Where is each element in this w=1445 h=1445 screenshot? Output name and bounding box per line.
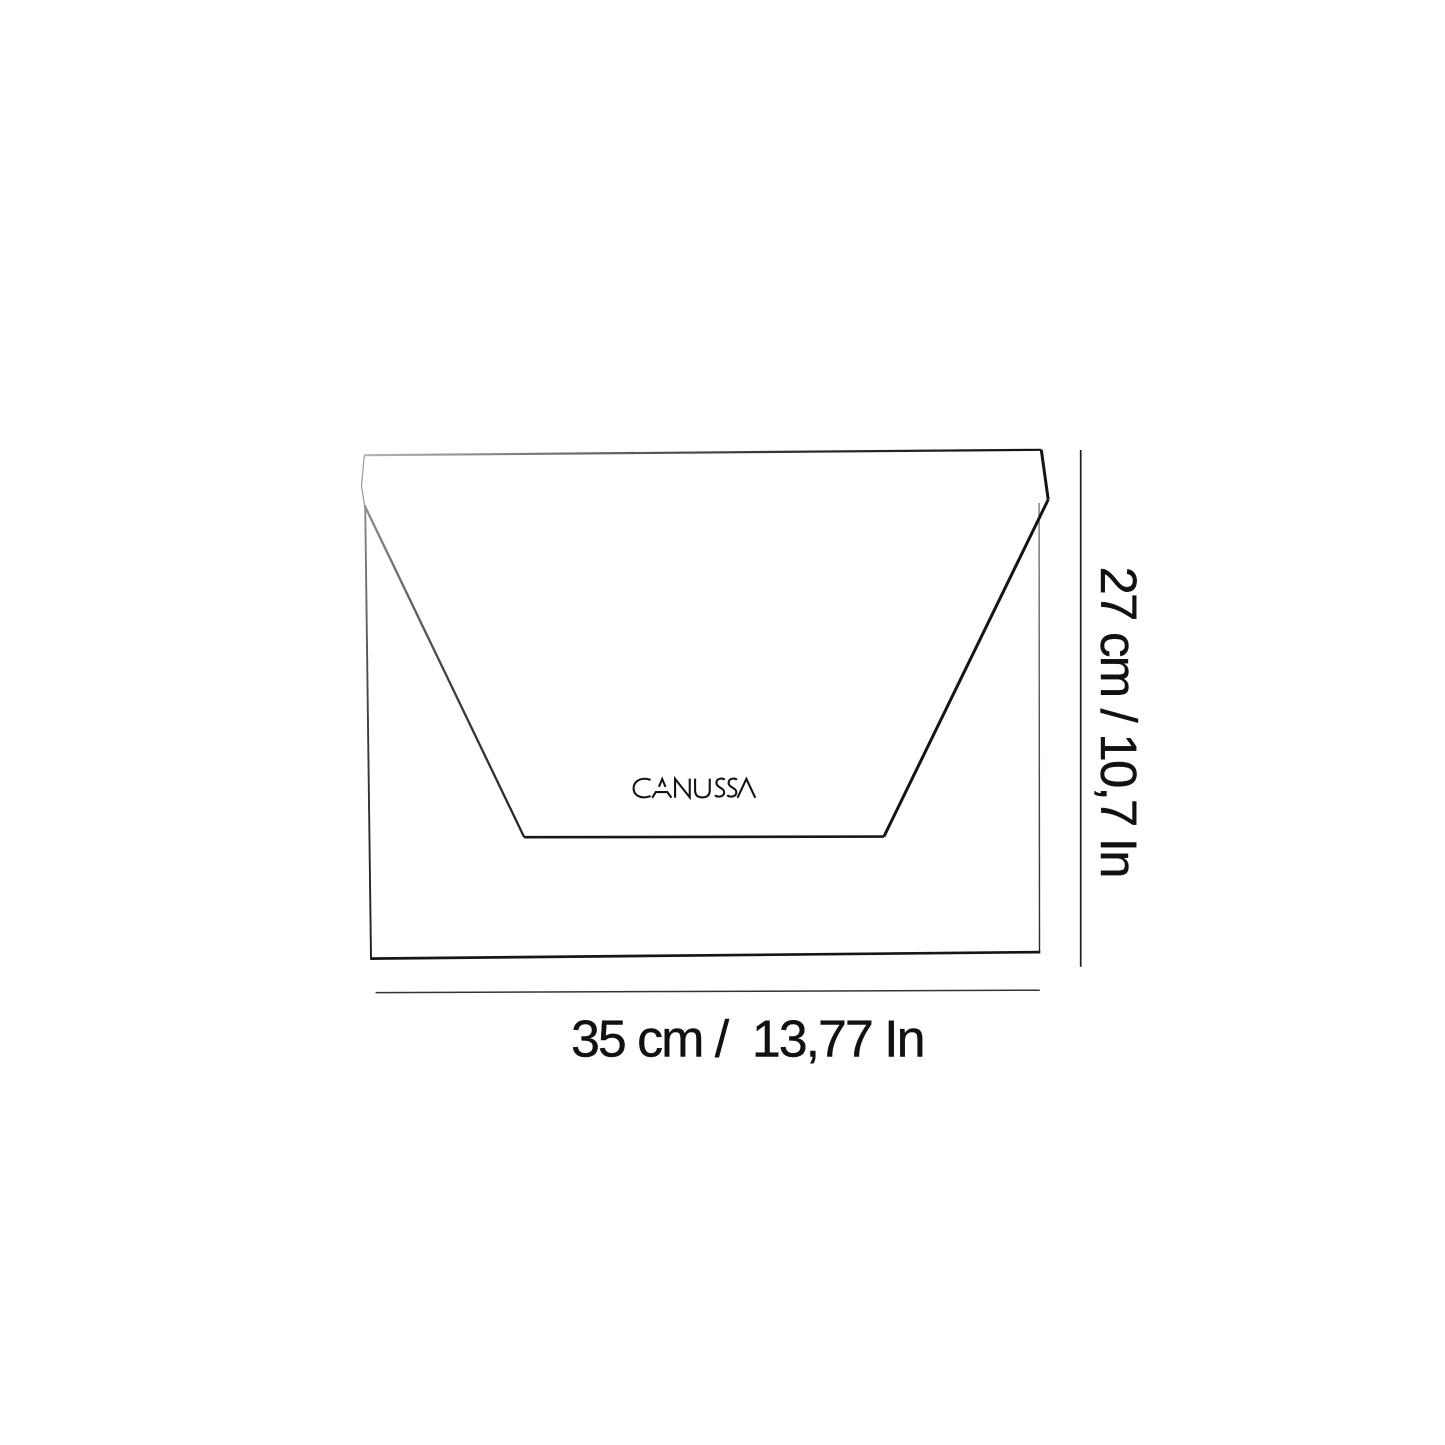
svg-text:27 cm / 10,7 In: 27 cm / 10,7 In [1090, 567, 1147, 879]
svg-text:35 cm / 13,77 In: 35 cm / 13,77 In [571, 1011, 926, 1069]
